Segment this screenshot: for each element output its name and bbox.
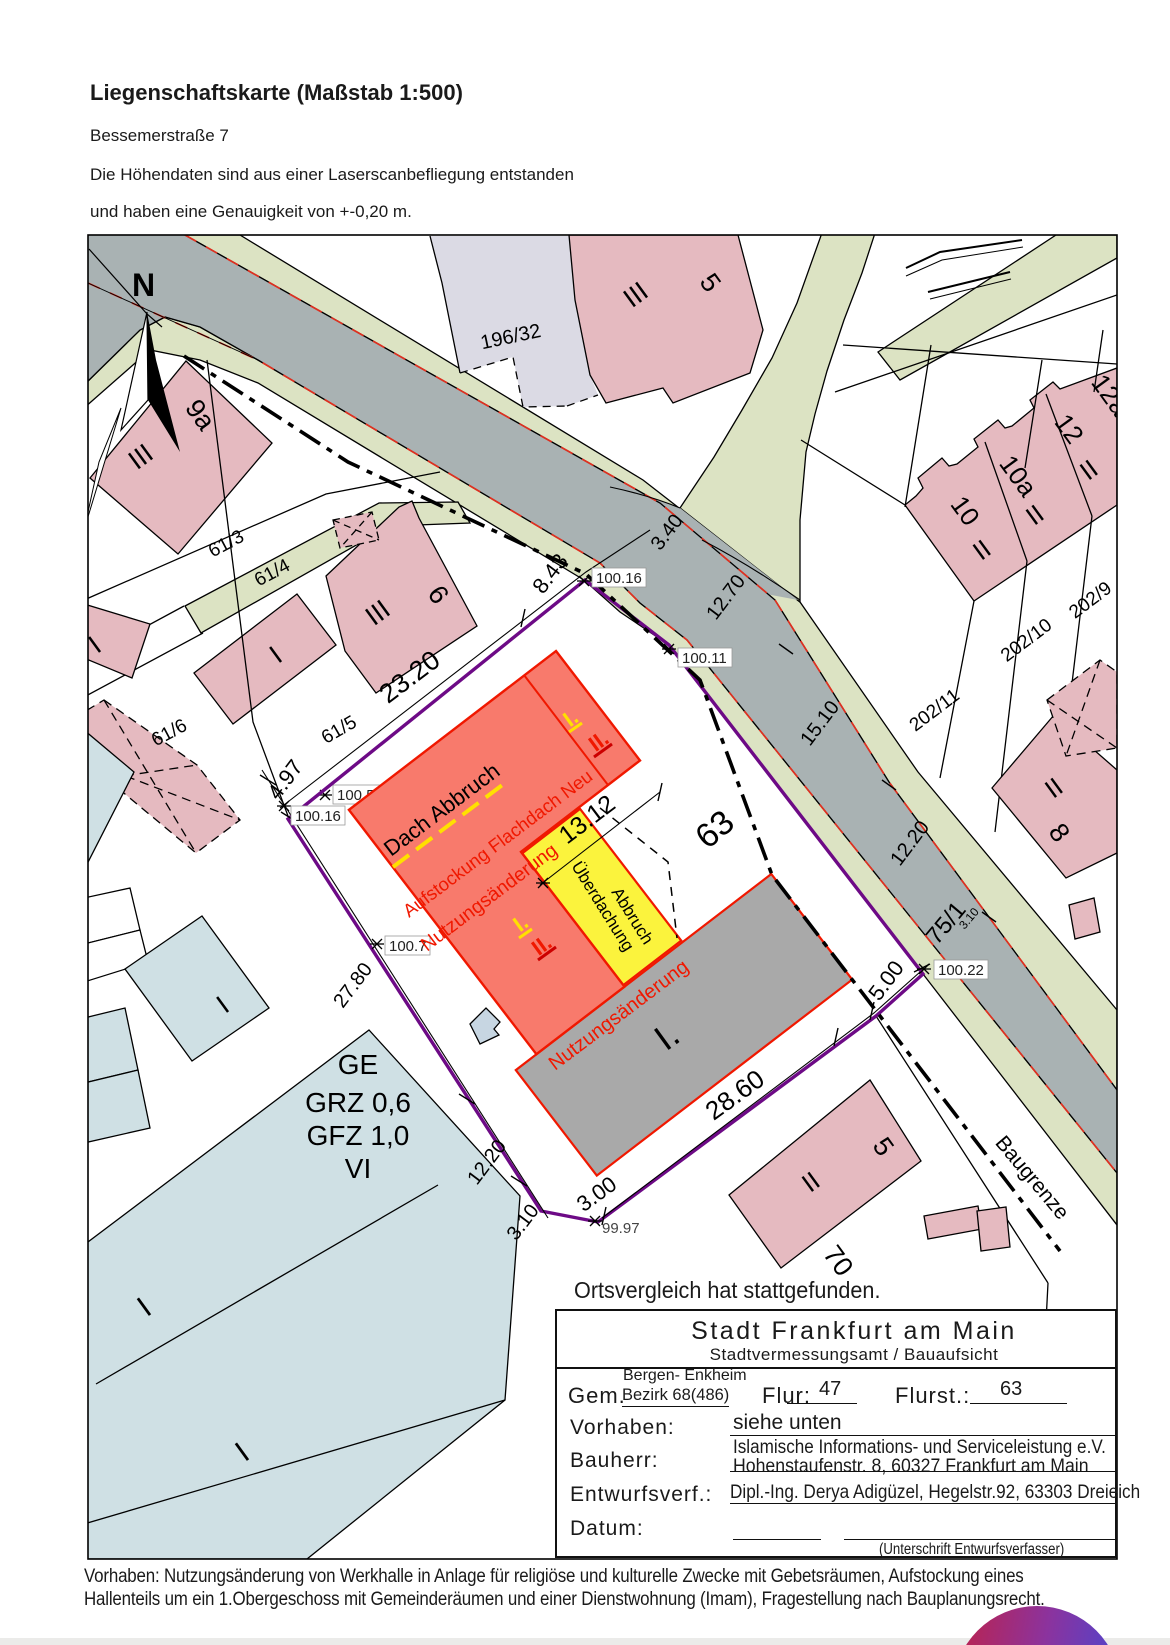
svg-text:99.97: 99.97 (602, 1220, 640, 1237)
svg-text:N: N (132, 267, 155, 303)
svg-text:100.22: 100.22 (938, 962, 984, 979)
svg-text:GE: GE (338, 1049, 378, 1080)
svg-text:4.97: 4.97 (262, 755, 308, 804)
svg-text:27.80: 27.80 (329, 959, 377, 1012)
svg-text:GRZ 0,6: GRZ 0,6 (305, 1087, 411, 1118)
svg-text:202/10: 202/10 (997, 615, 1056, 667)
svg-text:100.11: 100.11 (682, 650, 727, 667)
svg-text:202/9: 202/9 (1065, 578, 1116, 623)
svg-text:70: 70 (817, 1240, 859, 1282)
svg-text:GFZ 1,0: GFZ 1,0 (307, 1120, 410, 1151)
svg-text:VI: VI (345, 1153, 371, 1184)
svg-text:63: 63 (688, 803, 741, 856)
svg-text:100.16: 100.16 (295, 808, 341, 825)
svg-text:5.00: 5.00 (863, 956, 909, 1005)
svg-text:100.16: 100.16 (596, 570, 642, 587)
svg-text:202/11: 202/11 (906, 685, 964, 736)
svg-text:61/5: 61/5 (318, 712, 361, 749)
